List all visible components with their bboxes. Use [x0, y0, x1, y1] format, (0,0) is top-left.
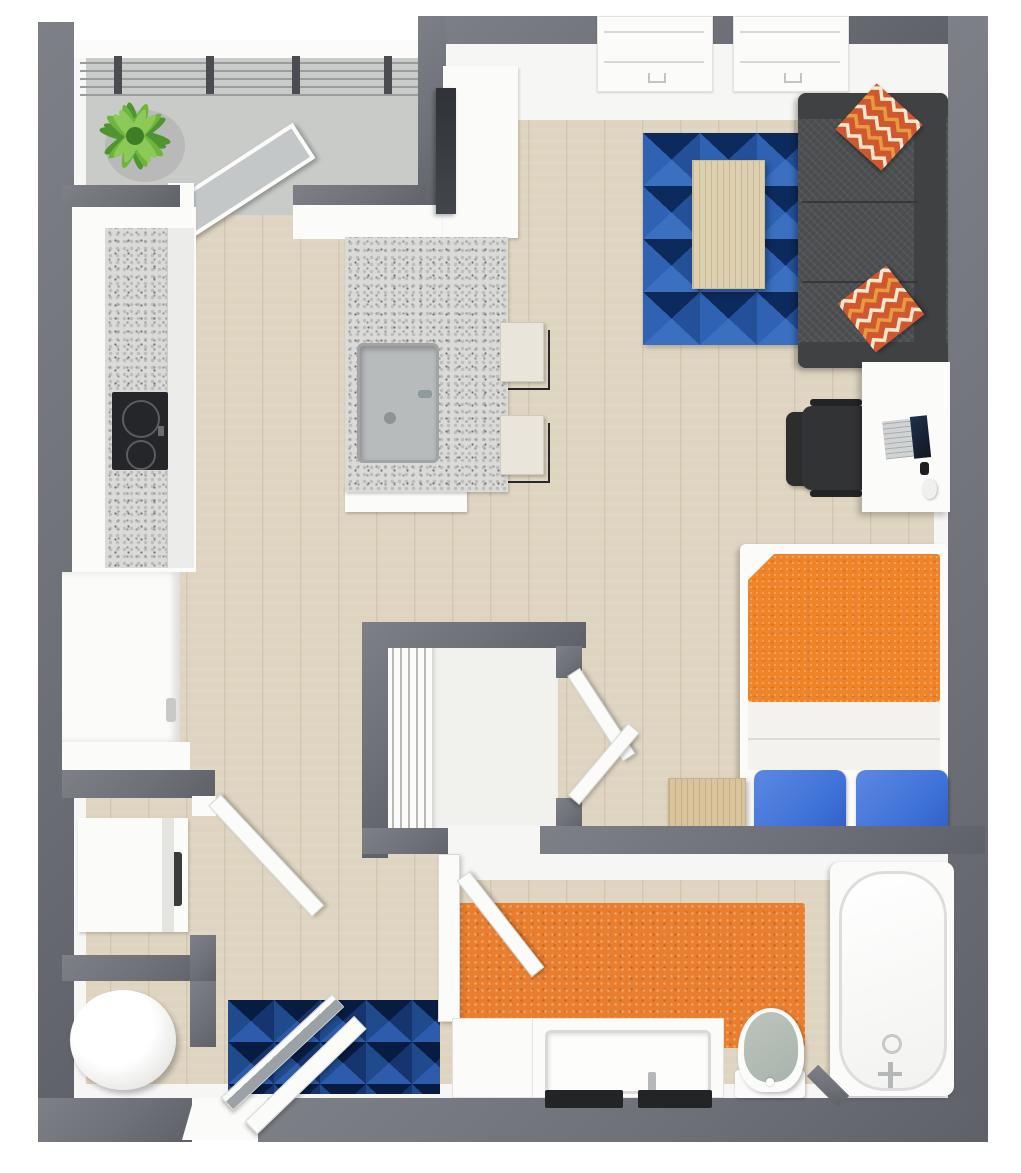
coffee-table [692, 160, 765, 289]
bathtub-basin [839, 871, 947, 1091]
toilet-hinge-icon [766, 1078, 774, 1086]
kitchen-top-counter [293, 205, 443, 239]
bar-stool-frame [508, 330, 550, 390]
closet-wall-left [362, 622, 388, 858]
window-pane-line [740, 31, 840, 33]
closet-wall-bottom [362, 828, 460, 854]
balcony-railing-ledge [72, 40, 418, 58]
cooktop-burner [122, 400, 160, 438]
potted-plant [85, 86, 189, 190]
bed-comforter [748, 554, 940, 702]
bathtub-drain-icon [882, 1034, 902, 1054]
kitchen-lower-cabinet [62, 742, 190, 772]
railing-post [292, 56, 300, 94]
sofa-cushion-seam [802, 201, 918, 203]
window-latch-icon [784, 73, 802, 83]
plant-icon [85, 86, 189, 190]
bed-sheet [748, 702, 940, 770]
tv-panel [436, 88, 456, 214]
closet-slatted-organizer [384, 646, 432, 834]
vanity-side-cabinet [452, 1018, 534, 1098]
sofa-back-bolster [914, 99, 946, 362]
bathtub-faucet-icon [878, 1072, 902, 1076]
office-chair-armrest [810, 490, 862, 497]
laundry-closet-wall-top [62, 770, 215, 798]
window-pane-line [604, 31, 704, 33]
vanity-sink [545, 1030, 711, 1094]
window-pane-line [740, 61, 840, 63]
toilet-lid [744, 1012, 798, 1082]
window [733, 16, 849, 92]
vanity-faucet-icon [648, 1072, 656, 1092]
bathroom-doorway [448, 826, 540, 878]
mouse [922, 479, 937, 499]
phone [920, 462, 929, 475]
cooktop-burner [126, 440, 156, 470]
sofa-cushion-seam [802, 281, 918, 283]
laundry-closet-wall-right [190, 935, 216, 981]
bedroom-bathroom-divider-wall [540, 826, 985, 854]
refrigerator-handle [166, 698, 176, 722]
window [597, 16, 713, 92]
railing-post [384, 56, 392, 94]
right-exterior-wall [948, 16, 988, 1142]
utility-closet-wall-right [190, 981, 216, 1047]
kitchen-counter-edge [167, 228, 194, 568]
closet-wall-top [362, 622, 586, 648]
cooktop-knob [158, 426, 164, 436]
vanity-drawer-front [545, 1090, 623, 1108]
washer-edge [162, 818, 174, 932]
sink-drain-icon [384, 412, 396, 424]
window-pane-line [604, 61, 704, 63]
bottom-exterior-wall-left [38, 1098, 192, 1142]
window-latch-icon [648, 73, 666, 83]
comforter-fold [748, 554, 774, 580]
office-chair-armrest [810, 399, 862, 406]
refrigerator [62, 572, 180, 742]
bar-stool-frame [508, 423, 550, 483]
water-heater [70, 990, 176, 1090]
railing-post [206, 56, 214, 94]
sink-faucet-icon [418, 390, 432, 398]
bottom-exterior-wall-right [258, 1098, 988, 1142]
washer-dryer [78, 818, 188, 932]
bathtub [830, 862, 954, 1096]
cooktop [112, 392, 168, 470]
vanity-drawer-front [638, 1090, 712, 1108]
floor-plan-canvas [0, 0, 1021, 1173]
island-sink [357, 343, 439, 463]
sheet-seam [748, 738, 940, 740]
